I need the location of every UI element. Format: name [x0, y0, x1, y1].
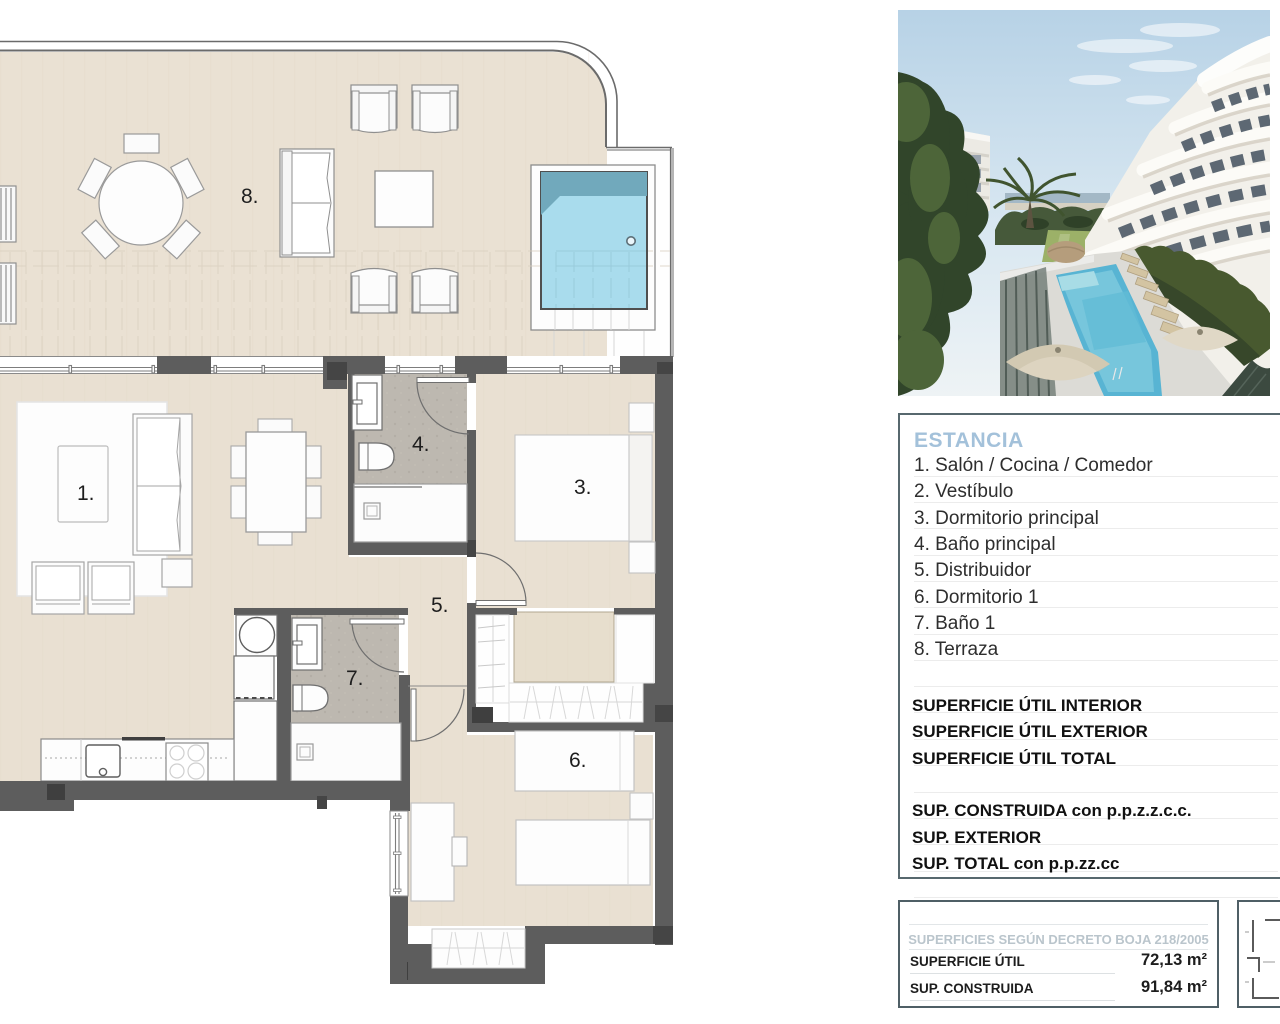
svg-text:7.: 7. [346, 667, 364, 690]
svg-text:4.: 4. [412, 433, 430, 456]
svg-text:1.: 1. [77, 482, 95, 505]
svg-text:5.: 5. [431, 594, 449, 617]
svg-text:3.: 3. [574, 476, 592, 499]
svg-text:8.: 8. [241, 185, 259, 208]
svg-text:6.: 6. [569, 749, 587, 772]
